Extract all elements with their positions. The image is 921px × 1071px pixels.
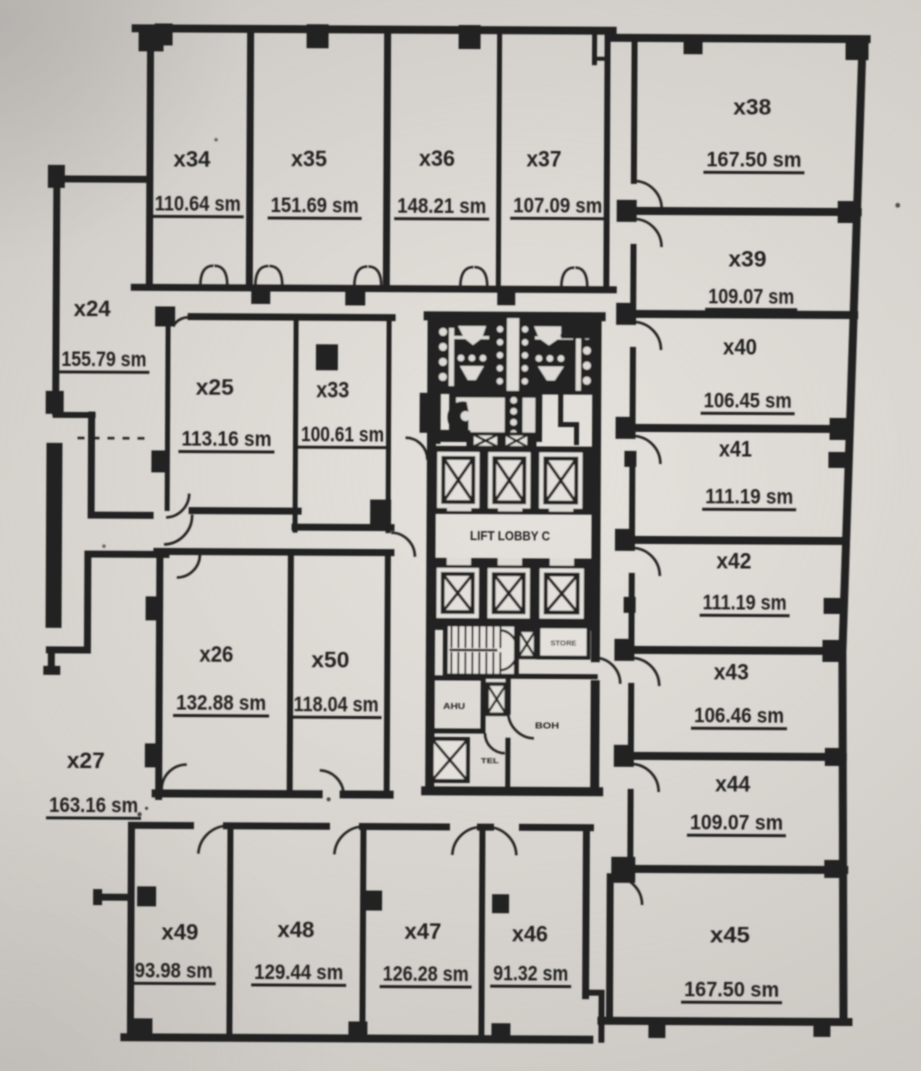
svg-text:x34: x34 bbox=[173, 146, 211, 171]
svg-text:111.19 sm: 111.19 sm bbox=[705, 485, 793, 508]
svg-text:167.50 sm: 167.50 sm bbox=[684, 978, 779, 1001]
svg-text:167.50 sm: 167.50 sm bbox=[706, 148, 801, 171]
svg-text:91.32 sm: 91.32 sm bbox=[493, 962, 568, 985]
svg-text:STORE: STORE bbox=[550, 638, 576, 647]
svg-text:118.04 sm: 118.04 sm bbox=[294, 693, 379, 716]
svg-text:107.09 sm: 107.09 sm bbox=[513, 194, 602, 217]
svg-text:113.16 sm: 113.16 sm bbox=[181, 428, 271, 451]
svg-text:151.69 sm: 151.69 sm bbox=[271, 194, 359, 217]
svg-text:x44: x44 bbox=[715, 771, 751, 796]
svg-text:163.16 sm: 163.16 sm bbox=[49, 794, 138, 817]
svg-text:106.46 sm: 106.46 sm bbox=[694, 704, 784, 727]
svg-text:x26: x26 bbox=[199, 642, 233, 667]
svg-text:x39: x39 bbox=[728, 246, 766, 271]
svg-text:109.07 sm: 109.07 sm bbox=[690, 811, 783, 834]
svg-text:x43: x43 bbox=[714, 659, 749, 684]
svg-text:111.19 sm: 111.19 sm bbox=[703, 591, 787, 614]
svg-text:x24: x24 bbox=[74, 296, 112, 321]
svg-text:JAN: JAN bbox=[452, 433, 468, 442]
svg-text:x33: x33 bbox=[316, 377, 349, 402]
svg-text:x40: x40 bbox=[723, 334, 757, 359]
svg-text:x38: x38 bbox=[733, 94, 771, 119]
svg-text:x46: x46 bbox=[512, 921, 548, 946]
svg-text:LIFT LOBBY C: LIFT LOBBY C bbox=[470, 529, 550, 543]
svg-text:TEL: TEL bbox=[481, 756, 500, 765]
svg-text:x42: x42 bbox=[716, 548, 751, 573]
svg-text:132.88 sm: 132.88 sm bbox=[176, 692, 266, 715]
svg-text:155.79 sm: 155.79 sm bbox=[61, 348, 146, 371]
svg-text:x35: x35 bbox=[291, 146, 327, 171]
svg-text:BOH: BOH bbox=[535, 721, 559, 730]
svg-text:x41: x41 bbox=[719, 436, 752, 461]
svg-text:x36: x36 bbox=[419, 146, 455, 171]
svg-text:93.98 sm: 93.98 sm bbox=[135, 959, 213, 982]
svg-text:AHU: AHU bbox=[443, 702, 465, 711]
svg-text:106.45 sm: 106.45 sm bbox=[704, 389, 792, 412]
svg-text:x45: x45 bbox=[710, 922, 750, 947]
svg-text:x50: x50 bbox=[311, 647, 349, 672]
svg-text:129.44 sm: 129.44 sm bbox=[254, 961, 343, 984]
svg-text:100.61 sm: 100.61 sm bbox=[301, 423, 384, 446]
svg-text:x48: x48 bbox=[277, 917, 314, 942]
svg-text:x27: x27 bbox=[67, 748, 105, 773]
svg-text:x47: x47 bbox=[404, 919, 441, 944]
svg-text:x37: x37 bbox=[526, 146, 561, 171]
svg-text:126.28 sm: 126.28 sm bbox=[383, 963, 469, 986]
svg-text:x49: x49 bbox=[161, 919, 198, 944]
svg-text:109.07 sm: 109.07 sm bbox=[708, 285, 794, 308]
svg-text:x25: x25 bbox=[196, 375, 234, 400]
svg-text:110.64 sm: 110.64 sm bbox=[155, 192, 241, 215]
svg-text:148.21 sm: 148.21 sm bbox=[397, 195, 486, 218]
